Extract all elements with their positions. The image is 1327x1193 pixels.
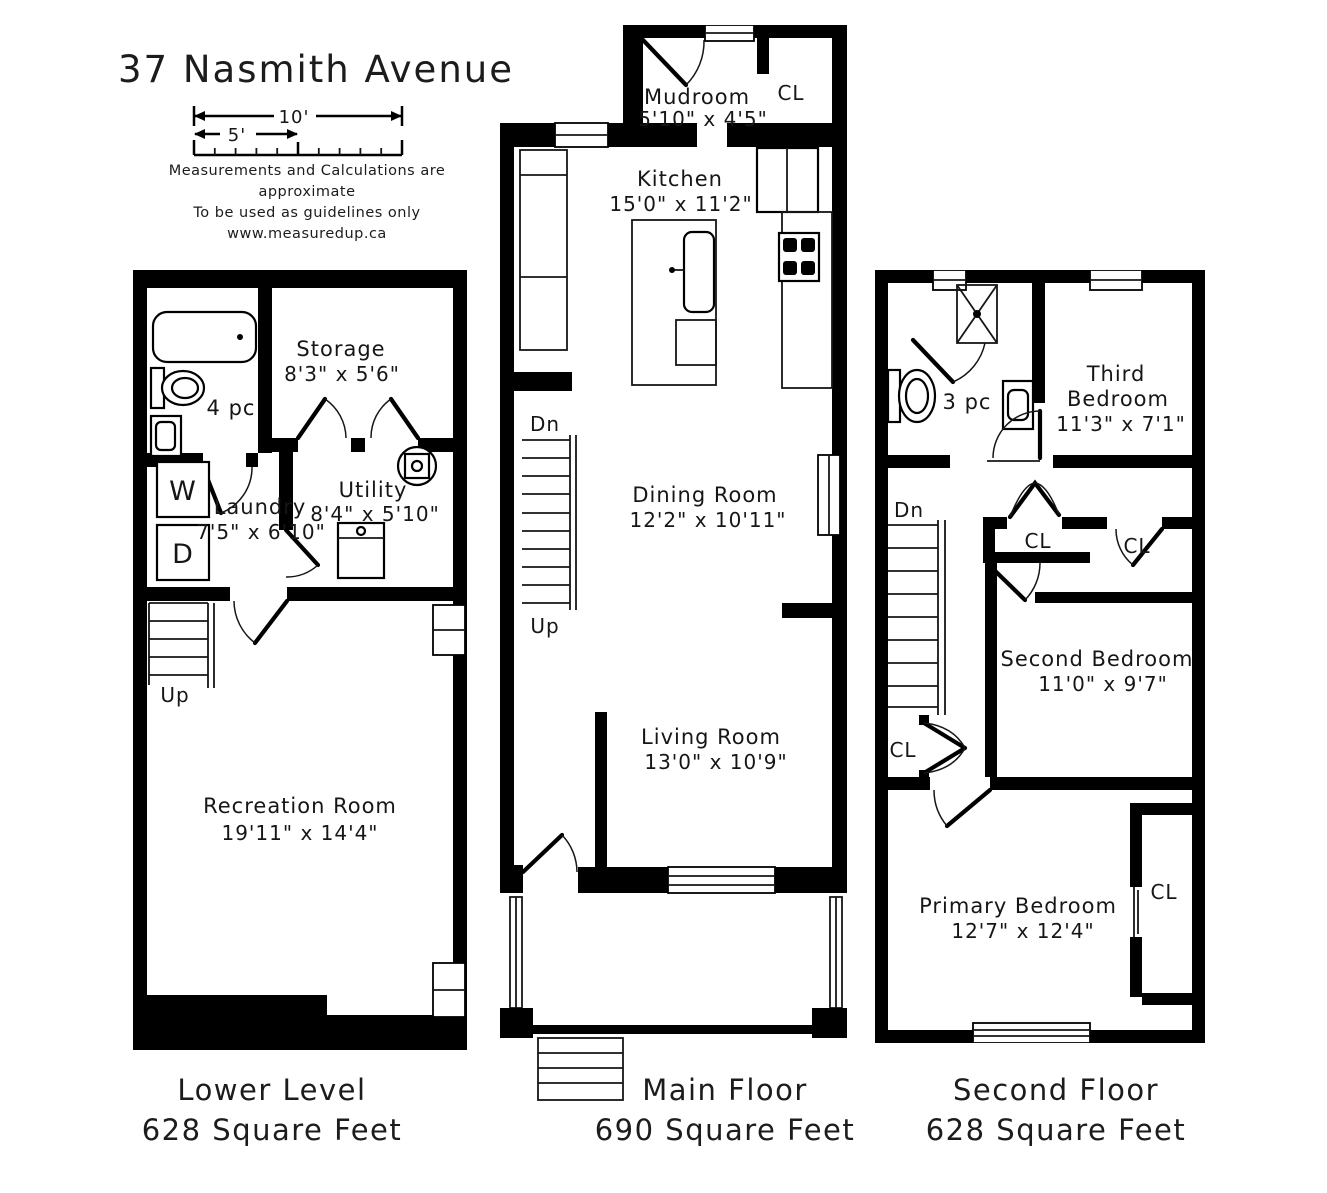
primary-bedroom-window xyxy=(973,1023,1090,1043)
lower-stairs-up xyxy=(149,603,214,688)
svg-text:Utility: Utility xyxy=(339,478,408,502)
scale-10ft-line: 10' xyxy=(194,106,402,128)
shower-icon xyxy=(913,285,997,382)
mudroom-closet-label: CL xyxy=(777,81,804,105)
scale-10ft-label: 10' xyxy=(279,107,310,128)
stove-icon xyxy=(779,233,819,281)
washer-icon: W xyxy=(157,462,209,517)
scale-5ft-label: 5' xyxy=(228,125,246,146)
svg-text:11'3" x 7'1": 11'3" x 7'1" xyxy=(1056,412,1186,436)
main-floor-caption: Main Floor 690 Square Feet xyxy=(558,1070,892,1150)
living-window xyxy=(668,867,775,893)
bathtub-icon xyxy=(153,312,256,362)
lower-right-window-2 xyxy=(433,963,465,1017)
mudroom-window xyxy=(705,25,754,41)
recreation-room-label: Recreation Room 19'11" x 14'4" xyxy=(203,794,397,845)
front-door xyxy=(523,835,577,872)
toilet-icon xyxy=(151,368,204,408)
svg-text:13'0" x 10'9": 13'0" x 10'9" xyxy=(644,750,787,774)
main-stairs xyxy=(522,435,576,610)
vanity-sink-icon xyxy=(1003,381,1033,429)
closet-label-2: CL xyxy=(1123,534,1150,558)
storage-door-right xyxy=(371,399,418,438)
main-floor-plan: Dn Up CL Mudroom 5'10" x 4'5" Kitchen 15… xyxy=(500,25,847,1103)
main-stairs-up-label: Up xyxy=(530,614,559,638)
disclaimer-line-2: To be used as guidelines only xyxy=(132,203,482,224)
svg-text:Recreation Room: Recreation Room xyxy=(203,794,397,818)
svg-text:15'0" x 11'2": 15'0" x 11'2" xyxy=(609,192,752,216)
disclaimer-line-3: www.measuredup.ca xyxy=(132,224,482,245)
primary-bedroom-label: Primary Bedroom 12'7" x 12'4" xyxy=(919,894,1117,943)
bath-sink-icon xyxy=(151,416,181,456)
bath-window xyxy=(933,270,966,290)
kitchen-island xyxy=(632,220,716,385)
dining-room-label: Dining Room 12'2" x 10'11" xyxy=(629,483,786,532)
page-title: 37 Nasmith Avenue xyxy=(118,48,514,91)
svg-text:Mudroom: Mudroom xyxy=(644,85,750,109)
svg-text:Bedroom: Bedroom xyxy=(1067,387,1169,411)
scale-bar: 10' 5' xyxy=(190,102,410,164)
hall-closet-doors xyxy=(1010,483,1059,517)
dining-window xyxy=(818,455,840,535)
lower-level-caption-area: 628 Square Feet xyxy=(105,1110,439,1150)
porch xyxy=(500,897,847,1038)
storage-door-left xyxy=(298,399,346,438)
svg-text:Living Room: Living Room xyxy=(641,725,781,749)
disclaimer-text: Measurements and Calculations are approx… xyxy=(132,161,482,245)
second-floor-plan: Dn 3 pc Third Bedroom 11'3" x 7'1" CL CL… xyxy=(875,270,1205,1043)
svg-text:19'11" x 14'4": 19'11" x 14'4" xyxy=(221,821,378,845)
svg-text:Third: Third xyxy=(1086,362,1146,386)
main-floor-caption-area: 690 Square Feet xyxy=(558,1110,892,1150)
laundry-tub-icon xyxy=(338,523,384,578)
svg-text:Second Bedroom: Second Bedroom xyxy=(1001,647,1194,671)
second-stairs-dn-label: Dn xyxy=(894,498,924,522)
svg-text:Dining Room: Dining Room xyxy=(632,483,777,507)
second-stairs-dn xyxy=(888,520,945,715)
fridge-icon xyxy=(757,148,818,212)
second-bedroom-label: Second Bedroom 11'0" x 9'7" xyxy=(1001,647,1194,696)
kitchen-label: Kitchen 15'0" x 11'2" xyxy=(609,167,752,216)
bath-4pc-label: 4 pc xyxy=(207,396,256,420)
stair-closet-doors xyxy=(924,723,965,773)
closet-label-1: CL xyxy=(1024,529,1051,553)
svg-text:5'10" x 4'5": 5'10" x 4'5" xyxy=(638,107,768,131)
second-floor-caption-name: Second Floor xyxy=(889,1070,1223,1110)
svg-text:Laundry: Laundry xyxy=(214,495,307,519)
lower-level-caption: Lower Level 628 Square Feet xyxy=(105,1070,439,1150)
second-floor-caption: Second Floor 628 Square Feet xyxy=(889,1070,1223,1150)
svg-text:8'4" x 5'10": 8'4" x 5'10" xyxy=(310,502,440,526)
toilet-icon-2 xyxy=(888,370,935,422)
mudroom-label: Mudroom 5'10" x 4'5" xyxy=(638,85,768,131)
third-bedroom-label: Third Bedroom 11'3" x 7'1" xyxy=(1056,362,1186,436)
closet-label-4: CL xyxy=(1150,880,1177,904)
disclaimer-line-1: Measurements and Calculations are approx… xyxy=(132,161,482,203)
second-floor-caption-area: 628 Square Feet xyxy=(889,1110,1223,1150)
lower-stairs-up-label: Up xyxy=(160,683,189,707)
main-floor-caption-name: Main Floor xyxy=(558,1070,892,1110)
svg-text:Primary Bedroom: Primary Bedroom xyxy=(919,894,1117,918)
bath-3pc-label: 3 pc xyxy=(943,390,992,414)
scale-5ft-line: 5' xyxy=(194,125,298,146)
kitchen-counter-left xyxy=(520,150,567,350)
svg-text:11'0" x 9'7": 11'0" x 9'7" xyxy=(1038,672,1168,696)
svg-text:Kitchen: Kitchen xyxy=(637,167,723,191)
svg-text:8'3" x 5'6": 8'3" x 5'6" xyxy=(284,362,400,386)
third-bedroom-window xyxy=(1090,270,1142,290)
floor-plan-page: 37 Nasmith Avenue 10' 5' Measurements an… xyxy=(0,0,1327,1193)
mudroom-door xyxy=(643,40,704,85)
recreation-door xyxy=(234,601,287,643)
main-stairs-dn-label: Dn xyxy=(530,412,560,436)
closet-label-3: CL xyxy=(889,738,916,762)
svg-text:12'2" x 10'11": 12'2" x 10'11" xyxy=(629,508,786,532)
svg-text:12'7" x 12'4": 12'7" x 12'4" xyxy=(951,919,1094,943)
lower-right-window-1 xyxy=(433,605,465,655)
scale-ruler-ticks xyxy=(194,140,402,155)
primary-closet-slider xyxy=(1134,887,1138,937)
lower-level-caption-name: Lower Level xyxy=(105,1070,439,1110)
dryer-label: D xyxy=(172,539,194,570)
storage-room-label: Storage 8'3" x 5'6" xyxy=(284,337,400,386)
svg-text:Storage: Storage xyxy=(296,337,385,361)
primary-bedroom-door xyxy=(934,790,990,826)
washer-label: W xyxy=(169,476,197,507)
lower-level-plan: W D Up 4 pc Storage 8'3" x 5'6" Laundry … xyxy=(133,270,467,1054)
laundry-room-label: Laundry 7'5" x 6'10" xyxy=(196,495,326,544)
kitchen-window xyxy=(555,123,608,147)
living-room-label: Living Room 13'0" x 10'9" xyxy=(641,725,788,774)
svg-text:7'5" x 6'10": 7'5" x 6'10" xyxy=(196,520,326,544)
